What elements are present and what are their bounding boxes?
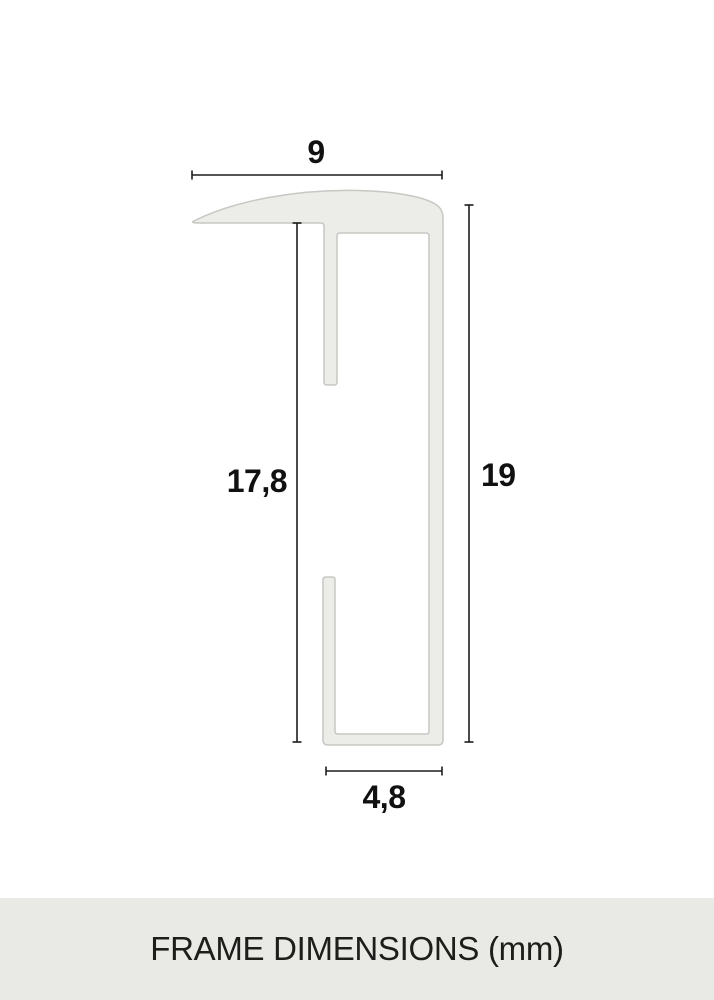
dimension-label-left-height: 17,8 xyxy=(227,463,287,499)
dimension-left-height: 17,8 xyxy=(227,223,302,742)
dimension-top-width: 9 xyxy=(192,134,442,180)
dimension-right-height: 19 xyxy=(465,205,516,742)
frame-profile-diagram: 9 17,8 19 4,8 xyxy=(0,0,714,1000)
dimension-bottom-width: 4,8 xyxy=(326,767,442,816)
footer-caption: FRAME DIMENSIONS (mm) xyxy=(150,930,564,968)
dimension-label-top-width: 9 xyxy=(307,134,324,170)
dimension-label-bottom-width: 4,8 xyxy=(363,779,406,815)
footer-caption-bar: FRAME DIMENSIONS (mm) xyxy=(0,898,714,1000)
frame-dimensions-page: 9 17,8 19 4,8 FRAME DIMENSIONS (mm) xyxy=(0,0,714,1000)
dimension-label-right-height: 19 xyxy=(481,457,516,493)
